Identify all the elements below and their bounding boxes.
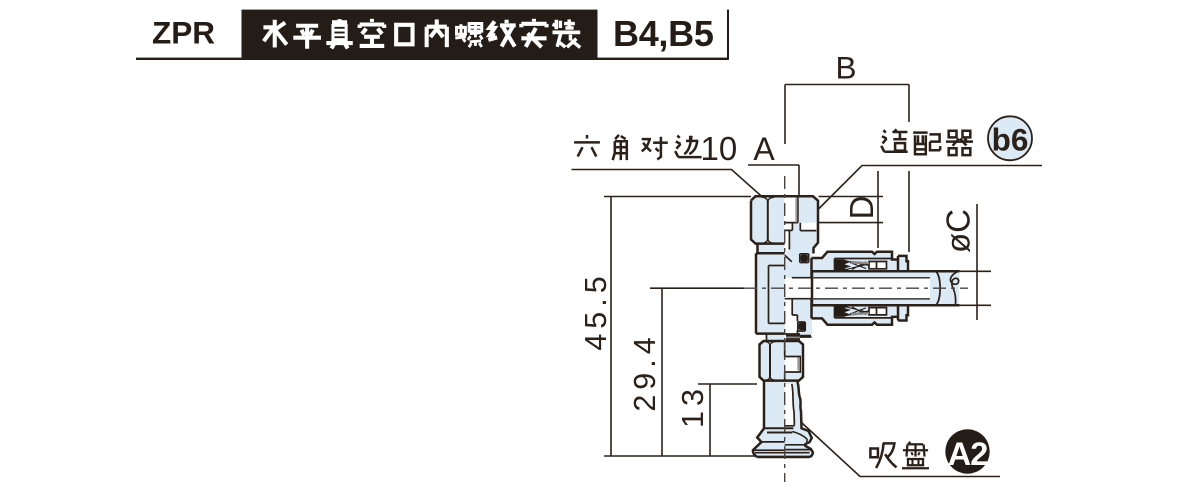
svg-text:øC: øC [940,209,977,253]
svg-text:D: D [843,196,880,220]
svg-text:13: 13 [676,384,710,428]
svg-text:A2: A2 [948,436,988,472]
svg-text:A: A [753,131,775,167]
svg-text:10: 10 [701,130,738,167]
svg-text:ZPR: ZPR [152,15,215,51]
svg-text:29.4: 29.4 [628,332,662,411]
svg-text:B: B [835,50,856,86]
svg-text:45.5: 45.5 [579,271,613,350]
svg-text:b6: b6 [992,122,1029,158]
svg-text:B4,B5: B4,B5 [613,13,714,54]
